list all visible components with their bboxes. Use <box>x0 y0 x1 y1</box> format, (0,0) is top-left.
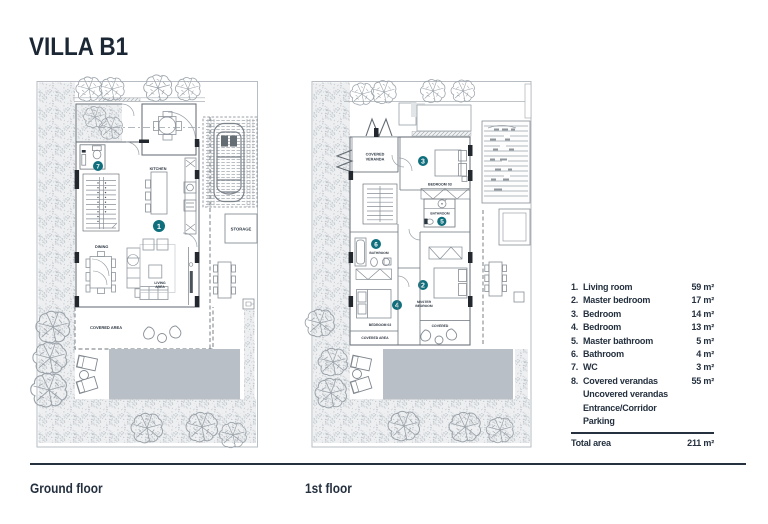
svg-text:7: 7 <box>96 163 100 170</box>
svg-text:COVERED AREA: COVERED AREA <box>361 336 389 340</box>
svg-text:BATHROOM: BATHROOM <box>430 212 449 216</box>
svg-text:COVERED AREA: COVERED AREA <box>90 325 122 330</box>
svg-text:COVERED: COVERED <box>366 153 385 157</box>
svg-text:BEDROOM 02: BEDROOM 02 <box>369 323 392 327</box>
svg-text:AREA: AREA <box>155 285 165 289</box>
svg-text:BEDROOM: BEDROOM <box>415 304 432 308</box>
svg-text:6: 6 <box>374 241 378 248</box>
svg-text:5: 5 <box>440 218 444 225</box>
svg-text:2: 2 <box>421 283 425 290</box>
svg-text:4: 4 <box>395 303 399 310</box>
svg-text:1: 1 <box>157 222 161 231</box>
svg-text:STORAGE: STORAGE <box>231 227 252 232</box>
svg-text:DINING: DINING <box>95 245 108 249</box>
svg-text:BATHROOM: BATHROOM <box>369 251 388 255</box>
svg-text:VERANDA: VERANDA <box>366 158 385 162</box>
svg-text:KITCHEN: KITCHEN <box>150 167 167 171</box>
svg-text:BEDROOM 03: BEDROOM 03 <box>428 183 452 187</box>
svg-text:COVERED: COVERED <box>432 324 449 328</box>
svg-text:3: 3 <box>421 159 425 166</box>
